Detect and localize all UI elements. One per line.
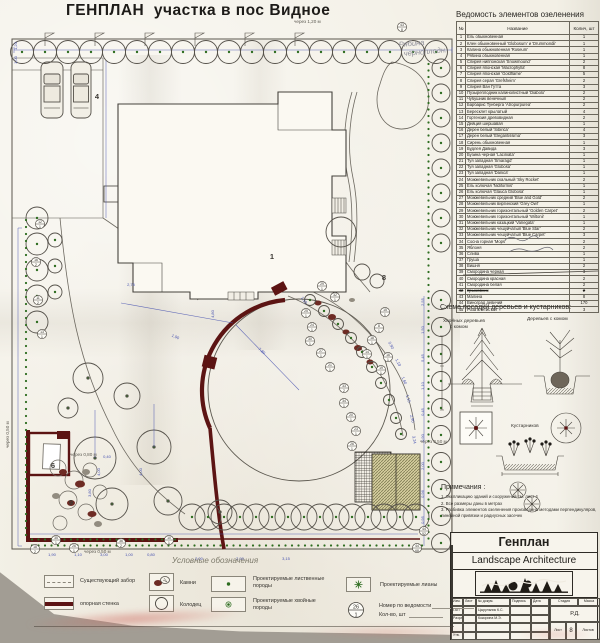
column-header-qty: Колич, шт — [570, 22, 599, 35]
svg-text:3,24: 3,24 — [411, 435, 417, 444]
well-icon — [149, 595, 174, 612]
column-header-num: № — [457, 22, 466, 35]
svg-text:1,15: 1,15 — [405, 394, 412, 404]
svg-text:1,10: 1,10 — [74, 552, 83, 557]
stones-icon — [149, 573, 174, 591]
svg-text:18: 18 — [370, 336, 374, 340]
liana-symbol-icon — [346, 577, 371, 592]
svg-text:3,80: 3,80 — [87, 488, 92, 497]
svg-text:14: 14 — [365, 350, 369, 354]
svg-text:1: 1 — [320, 354, 322, 358]
svg-text:1: 1 — [384, 313, 386, 317]
tb-sheets-label: Листов — [576, 622, 600, 640]
svg-text:13: 13 — [40, 330, 44, 334]
tb-role-utv: Утв. — [451, 632, 463, 640]
svg-text:3,15: 3,15 — [282, 556, 291, 561]
svg-text:52: 52 — [422, 532, 426, 536]
svg-text:8: 8 — [378, 324, 380, 328]
svg-text:44: 44 — [415, 544, 419, 548]
svg-text:1: 1 — [270, 252, 274, 261]
svg-text:1: 1 — [387, 358, 389, 362]
svg-text:1,00: 1,00 — [13, 55, 18, 64]
legend-deciduous-label: Проектируемые лиственные — [253, 576, 324, 582]
svg-text:2,90: 2,90 — [409, 414, 416, 424]
titleblock-title: Генплан — [451, 533, 597, 553]
legend-fence-label: Существующий забор — [80, 578, 135, 584]
note-item: 2. Все размеры даны в метрах — [441, 501, 597, 507]
svg-text:через 0,50 м: через 0,50 м — [5, 421, 10, 448]
svg-text:1: 1 — [321, 287, 323, 291]
svg-text:23: 23 — [354, 427, 358, 431]
tb-stage-value: Р.Д. — [550, 606, 600, 622]
svg-text:1: 1 — [168, 541, 170, 545]
orchard-trees — [58, 363, 232, 524]
existing-fence-swatch — [44, 575, 74, 588]
svg-text:24: 24 — [310, 323, 314, 327]
svg-text:35: 35 — [54, 536, 58, 540]
svg-text:26: 26 — [350, 442, 354, 446]
svg-text:2: 2 — [35, 263, 37, 267]
svg-text:9: 9 — [69, 498, 73, 507]
note-item: 1. Экспликацию зданий и сооружений см. л… — [441, 494, 597, 500]
notes-title: Примечания : — [441, 484, 597, 491]
svg-text:2,55: 2,55 — [420, 297, 425, 306]
tb-name-razrab: Кокорина М.Э. — [476, 615, 510, 623]
plant-schedule: Ведомость элементов озеленения № Названи… — [456, 10, 598, 313]
svg-text:2: 2 — [120, 544, 122, 548]
svg-text:0,40: 0,40 — [103, 454, 112, 459]
svg-text:0,90: 0,90 — [387, 341, 395, 351]
svg-text:2: 2 — [343, 389, 345, 393]
scheme-label-conifer: Хвойных деревьев — [443, 319, 485, 324]
tb-col-sign: Подпись — [510, 598, 531, 606]
garden-shed — [29, 431, 70, 475]
deciduous-symbol-icon — [211, 576, 246, 592]
legend-conifer-label2: породы — [253, 605, 272, 611]
tb-name-gap: Цырульник К.С. — [476, 606, 510, 614]
svg-text:1,90: 1,90 — [48, 552, 57, 557]
svg-text:1: 1 — [41, 335, 43, 339]
legend-lianas-label: Проектируемые лианы — [380, 582, 437, 588]
svg-text:1: 1 — [343, 404, 345, 408]
tb-col-docnum: № докум. — [476, 598, 510, 606]
svg-text:1,10: 1,10 — [420, 381, 425, 390]
tb-mass-label: Масса — [578, 598, 600, 606]
svg-text:0,95: 0,95 — [420, 515, 425, 524]
svg-text:12: 12 — [38, 220, 42, 224]
legend-rule — [409, 617, 443, 618]
svg-text:1: 1 — [380, 371, 382, 375]
svg-text:через 1,20 м: через 1,20 м — [294, 19, 321, 24]
callout-symbol-icon: 26 1 — [347, 600, 365, 620]
legend-deciduous-label2: породы — [253, 583, 272, 589]
scheme-label-deciduous: Деревьев с комом — [527, 317, 568, 322]
svg-text:26: 26 — [72, 544, 76, 548]
svg-text:20: 20 — [349, 413, 353, 417]
svg-text:19: 19 — [379, 366, 383, 370]
legend-callout-label1: Номер по ведомости — [379, 603, 431, 609]
svg-text:1: 1 — [305, 314, 307, 318]
svg-text:11: 11 — [36, 296, 40, 300]
svg-text:2: 2 — [37, 301, 39, 305]
svg-text:32: 32 — [333, 293, 337, 297]
svg-text:4,00: 4,00 — [96, 467, 101, 476]
column-header-name: Название — [466, 22, 570, 35]
svg-text:4: 4 — [95, 92, 100, 101]
tb-sheet-label: Лист — [550, 622, 566, 640]
svg-text:1,00: 1,00 — [125, 552, 134, 557]
house-outline — [104, 92, 346, 299]
paper-fold-line — [451, 300, 452, 550]
svg-text:1: 1 — [371, 341, 373, 345]
tb-stage-label: Стадия — [550, 598, 578, 606]
svg-text:1: 1 — [334, 298, 336, 302]
planting-scheme-title: Схема посадки деревьев и кустарников: — [440, 304, 598, 311]
titleblock-grid: Изм. Лист № докум. Подпись Дата ГАП Цыру… — [451, 598, 597, 640]
svg-text:30: 30 — [308, 337, 312, 341]
paper-fold-line — [451, 545, 453, 633]
svg-text:4,80: 4,80 — [210, 309, 215, 318]
svg-text:1,50: 1,50 — [420, 325, 425, 334]
title-block: Генплан Landscape Architecture Изм. Лист… — [450, 532, 598, 640]
svg-text:0,96: 0,96 — [420, 489, 425, 498]
scheme-label-conifer2: с комом — [450, 325, 468, 330]
svg-text:29: 29 — [320, 282, 324, 286]
svg-text:43: 43 — [400, 23, 404, 27]
legend-conifer-label: Проектируемые хвойные — [253, 598, 316, 604]
svg-text:1: 1 — [329, 368, 331, 372]
hedge-row — [11, 41, 448, 64]
scheme-label-shrubs: Кустарников — [511, 424, 539, 429]
svg-text:0,45: 0,45 — [420, 407, 425, 416]
tb-col-izm: Изм. — [451, 598, 463, 606]
tb-sheet-number: 8 — [566, 622, 576, 640]
svg-text:1,10: 1,10 — [394, 358, 402, 368]
svg-text:5,45: 5,45 — [420, 353, 425, 362]
svg-text:16: 16 — [386, 353, 390, 357]
svg-text:1,10: 1,10 — [300, 296, 309, 306]
svg-text:1,20: 1,20 — [13, 41, 18, 50]
svg-text:2,75: 2,75 — [127, 282, 136, 287]
svg-text:1: 1 — [378, 329, 380, 333]
pergola-deck — [355, 452, 420, 510]
legend-wall-label: опорная стенка — [80, 601, 119, 607]
conifer-symbol-icon — [211, 597, 246, 612]
svg-text:6: 6 — [51, 461, 55, 470]
svg-text:15: 15 — [383, 308, 387, 312]
retaining-wall-swatch — [44, 597, 74, 610]
svg-text:1: 1 — [55, 541, 57, 545]
svg-text:7,80: 7,80 — [257, 346, 267, 355]
legend-stones-label: Камни — [180, 580, 196, 586]
svg-text:1: 1 — [351, 447, 353, 451]
legend-callout-label2: Кол-во, шт — [379, 612, 406, 618]
svg-text:10: 10 — [167, 536, 171, 540]
svg-text:4,00: 4,00 — [138, 467, 143, 476]
site-plan-drawing: 4382913212512413012712113323412012312611… — [0, 0, 458, 562]
legend-rule — [432, 608, 474, 609]
notes-section: Примечания : 1. Экспликацию зданий и соо… — [441, 484, 597, 519]
svg-text:1: 1 — [355, 432, 357, 436]
titleblock-subtitle: Landscape Architecture — [451, 553, 597, 570]
sheet-bottom-rule — [34, 626, 454, 627]
tb-role-razrab: Разраб. — [451, 615, 463, 623]
svg-text:через 0,80 м: через 0,80 м — [70, 452, 97, 457]
svg-text:34: 34 — [342, 399, 346, 403]
legend-title: Условные обозначения — [172, 556, 258, 565]
svg-text:44: 44 — [422, 527, 426, 531]
svg-text:33: 33 — [342, 384, 346, 388]
svg-text:21: 21 — [328, 363, 332, 367]
svg-text:1: 1 — [309, 342, 311, 346]
svg-text:25: 25 — [304, 309, 308, 313]
svg-text:1: 1 — [311, 328, 313, 332]
tb-col-date: Дата — [531, 598, 549, 606]
tb-col-list: Лист — [463, 598, 476, 606]
svg-text:2,00: 2,00 — [420, 461, 425, 470]
parked-cars — [41, 62, 91, 118]
scanned-genplan-sheet: ГЕНПЛАН участка в пос Видное — [0, 0, 600, 643]
svg-text:18: 18 — [33, 545, 37, 549]
svg-text:27: 27 — [319, 349, 323, 353]
note-item: 3. Разбивка элементов озеленения произве… — [441, 507, 597, 518]
svg-text:1,90: 1,90 — [171, 333, 181, 341]
svg-text:68: 68 — [415, 549, 419, 553]
legend-well-label: Колодец — [180, 602, 201, 608]
svg-text:1: 1 — [39, 225, 41, 229]
plant-schedule-table: № Название Колич, шт 1Ель обыкновенная12… — [456, 21, 599, 313]
svg-text:через 0,50 м: через 0,50 м — [84, 549, 111, 554]
svg-text:8: 8 — [401, 28, 403, 32]
svg-text:36: 36 — [119, 539, 123, 543]
svg-text:1: 1 — [350, 418, 352, 422]
plants-tbody: 1Ель обыкновенная12Клен обыкновенный 'Gl… — [457, 35, 599, 313]
company-logo — [451, 570, 597, 598]
svg-text:1: 1 — [366, 355, 368, 359]
svg-text:1: 1 — [354, 613, 357, 619]
svg-text:8: 8 — [382, 273, 386, 282]
svg-text:0,80: 0,80 — [147, 552, 156, 557]
svg-text:2: 2 — [34, 550, 36, 554]
svg-text:26: 26 — [353, 605, 359, 611]
svg-text:16: 16 — [34, 258, 38, 262]
plant-schedule-title: Ведомость элементов озеленения — [456, 10, 598, 19]
